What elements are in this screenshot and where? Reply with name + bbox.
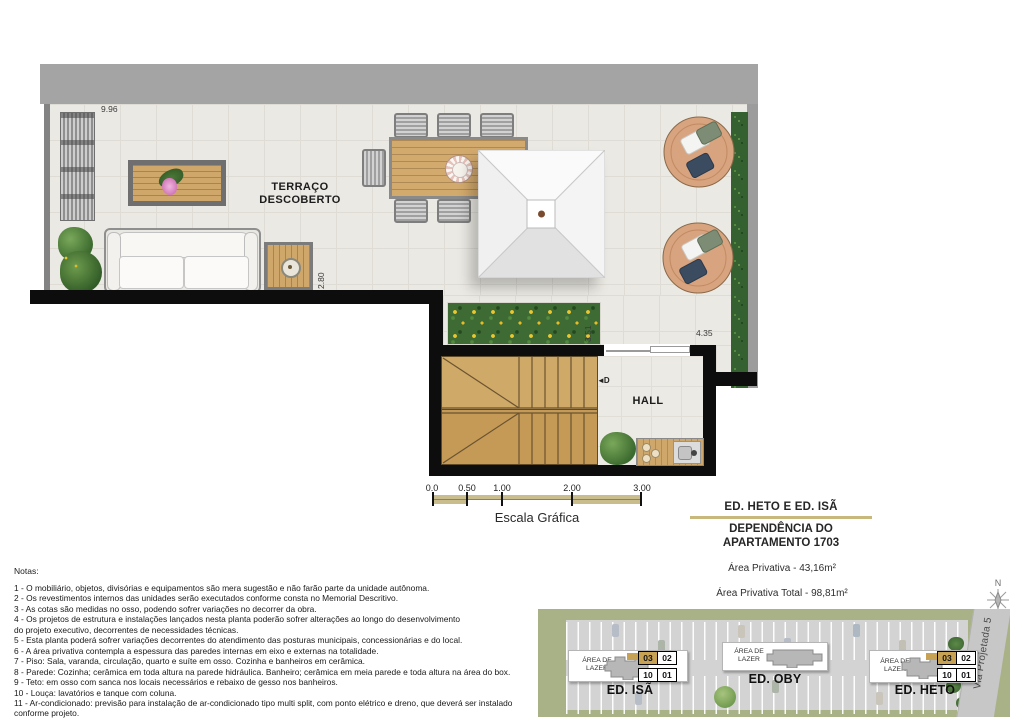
- note-line: 11 - Ar-condicionado: previsão para inst…: [14, 698, 512, 708]
- hall-plant: [600, 432, 636, 465]
- wall: [30, 290, 443, 304]
- notes-heading: Notas:: [14, 566, 39, 576]
- tree-icon: [714, 686, 736, 708]
- dining-chair: [394, 113, 428, 138]
- side-table: [264, 242, 313, 290]
- building-name-heto: ED. HETO: [890, 683, 960, 697]
- building-box-oby: ÁREA DE LAZER: [722, 642, 828, 671]
- note-line: 3 - As cotas são medidas no osso, podend…: [14, 604, 512, 614]
- unit-cell-10: 10: [638, 668, 658, 682]
- door-leaf: [650, 346, 690, 353]
- note-line: do projeto executivo, decorrentes de nec…: [14, 625, 512, 635]
- title-underline: [690, 516, 872, 519]
- wall: [429, 345, 441, 476]
- note-line: 5 - Esta planta poderá sofrer variações …: [14, 635, 512, 645]
- cup: [642, 454, 651, 463]
- scale-segment: [572, 499, 642, 504]
- unit-cell-03: 03: [937, 651, 957, 665]
- parked-car: [738, 625, 745, 638]
- umbrella-canopy: [478, 150, 605, 278]
- unit-cell-02: 02: [956, 651, 976, 665]
- table-centerpiece: [445, 155, 473, 183]
- dimension-planter: 3.51: [583, 310, 593, 342]
- unit-cell-01: 01: [956, 668, 976, 682]
- sofa: [104, 228, 261, 293]
- dining-chair: [437, 113, 471, 138]
- scale-tick: [432, 492, 434, 506]
- scale-tick: [571, 492, 573, 506]
- unit-title-line2: APARTAMENTO 1703: [688, 537, 874, 551]
- unit-cell-01: 01: [657, 668, 677, 682]
- dining-chair: [480, 113, 514, 138]
- sofa-back: [116, 232, 251, 258]
- scale-tick-labels: 0.00.501.002.003.00: [432, 483, 642, 493]
- wall: [703, 345, 716, 476]
- building-box-isa: ÁREA DE LAZER 03 02 10 01: [568, 650, 688, 682]
- dimension-top: 9.96: [101, 104, 118, 114]
- cup: [642, 443, 651, 452]
- scale-segment: [502, 499, 572, 504]
- scale-segment: [467, 499, 502, 504]
- note-line: 2 - Os revestimentos internos das unidad…: [14, 593, 512, 603]
- unit-grid: 03 02 10 01: [638, 651, 677, 682]
- dining-chair: [437, 199, 471, 223]
- top-wall-band: [40, 64, 758, 104]
- dining-chair: [362, 149, 386, 187]
- private-area-total: Área Privativa Total - 98,81m²: [682, 588, 882, 599]
- compass-north-label: N: [980, 578, 1016, 588]
- unit-title: DEPENDÊNCIA DO APARTAMENTO 1703: [688, 523, 874, 550]
- unit-cell-03: 03: [638, 651, 658, 665]
- door-direction-marker: ◄D: [597, 376, 609, 385]
- scale-bar: [432, 495, 642, 504]
- site-map: Via Projetada 5 ÁREA DE LAZER 03 02 10 0…: [538, 609, 1010, 717]
- flower-planter: [447, 302, 601, 345]
- terrace-label: TERRAÇO DESCOBERTO: [250, 181, 350, 207]
- building-name-isa: ED. ISÃ: [588, 683, 672, 697]
- scale-tick: [640, 492, 642, 506]
- door-track: [606, 350, 654, 352]
- dimension-hall: 4.35: [696, 328, 713, 338]
- building-footprint: [763, 646, 827, 668]
- project-title: ED. HETO E ED. ISÃ: [688, 501, 874, 513]
- sofa-cushion: [119, 256, 184, 289]
- unit-cell-02: 02: [657, 651, 677, 665]
- scale-tick: [501, 492, 503, 506]
- scale-caption: Escala Gráfica: [432, 510, 642, 525]
- louver-panel: [60, 112, 95, 221]
- hall-counter: [636, 438, 704, 466]
- note-line: 1 - O mobiliário, objetos, divisórias e …: [14, 583, 512, 593]
- orchid-flower: [162, 178, 177, 195]
- parked-car: [612, 624, 619, 637]
- unit-cell-10: 10: [937, 668, 957, 682]
- note-line: 6 - A área privativa contempla a espessu…: [14, 646, 512, 656]
- note-line: 4 - Os projetos de estrutura e instalaçõ…: [14, 614, 512, 624]
- unit-title-line1: DEPENDÊNCIA DO: [688, 523, 874, 537]
- sink: [673, 441, 701, 464]
- note-line: 7 - Piso: Sala, varanda, circulação, qua…: [14, 656, 512, 666]
- hall-label: HALL: [608, 395, 688, 408]
- parked-car: [853, 624, 860, 637]
- scale-segment: [432, 499, 467, 504]
- dimension-sofa: 2.80: [316, 253, 326, 289]
- building-box-heto: ÁREA DE LAZER 03 02 10 01: [869, 650, 978, 683]
- note-line: conforme projeto.: [14, 708, 512, 718]
- scale-tick-label: 3.00: [633, 483, 651, 493]
- note-line: 9 - Teto: em osso com sanca nos locais n…: [14, 677, 512, 687]
- staircase: [441, 356, 598, 470]
- sofa-cushion: [184, 256, 249, 289]
- right-wall-band: [747, 104, 758, 388]
- lounge-chair: [662, 115, 736, 189]
- notes-list: 1 - O mobiliário, objetos, divisórias e …: [14, 583, 512, 719]
- sliding-door: [604, 344, 690, 356]
- scale-tick: [466, 492, 468, 506]
- dining-chair: [394, 199, 428, 223]
- building-name-oby: ED. OBY: [744, 672, 806, 686]
- parked-car: [876, 692, 883, 705]
- private-area: Área Privativa - 43,16m²: [682, 563, 882, 574]
- cup: [651, 449, 660, 458]
- bowl: [281, 258, 301, 278]
- flowering-shrub: [60, 251, 102, 293]
- note-line: 10 - Louça: lavatórios e tanque com colu…: [14, 688, 512, 698]
- lounge-chair: [661, 221, 735, 295]
- wall: [429, 345, 606, 356]
- left-wall: [44, 104, 50, 294]
- wall: [429, 300, 443, 350]
- note-line: 8 - Parede: Cozinha; cerâmica em toda al…: [14, 667, 512, 677]
- unit-grid: 03 02 10 01: [937, 651, 976, 682]
- wall: [703, 372, 757, 386]
